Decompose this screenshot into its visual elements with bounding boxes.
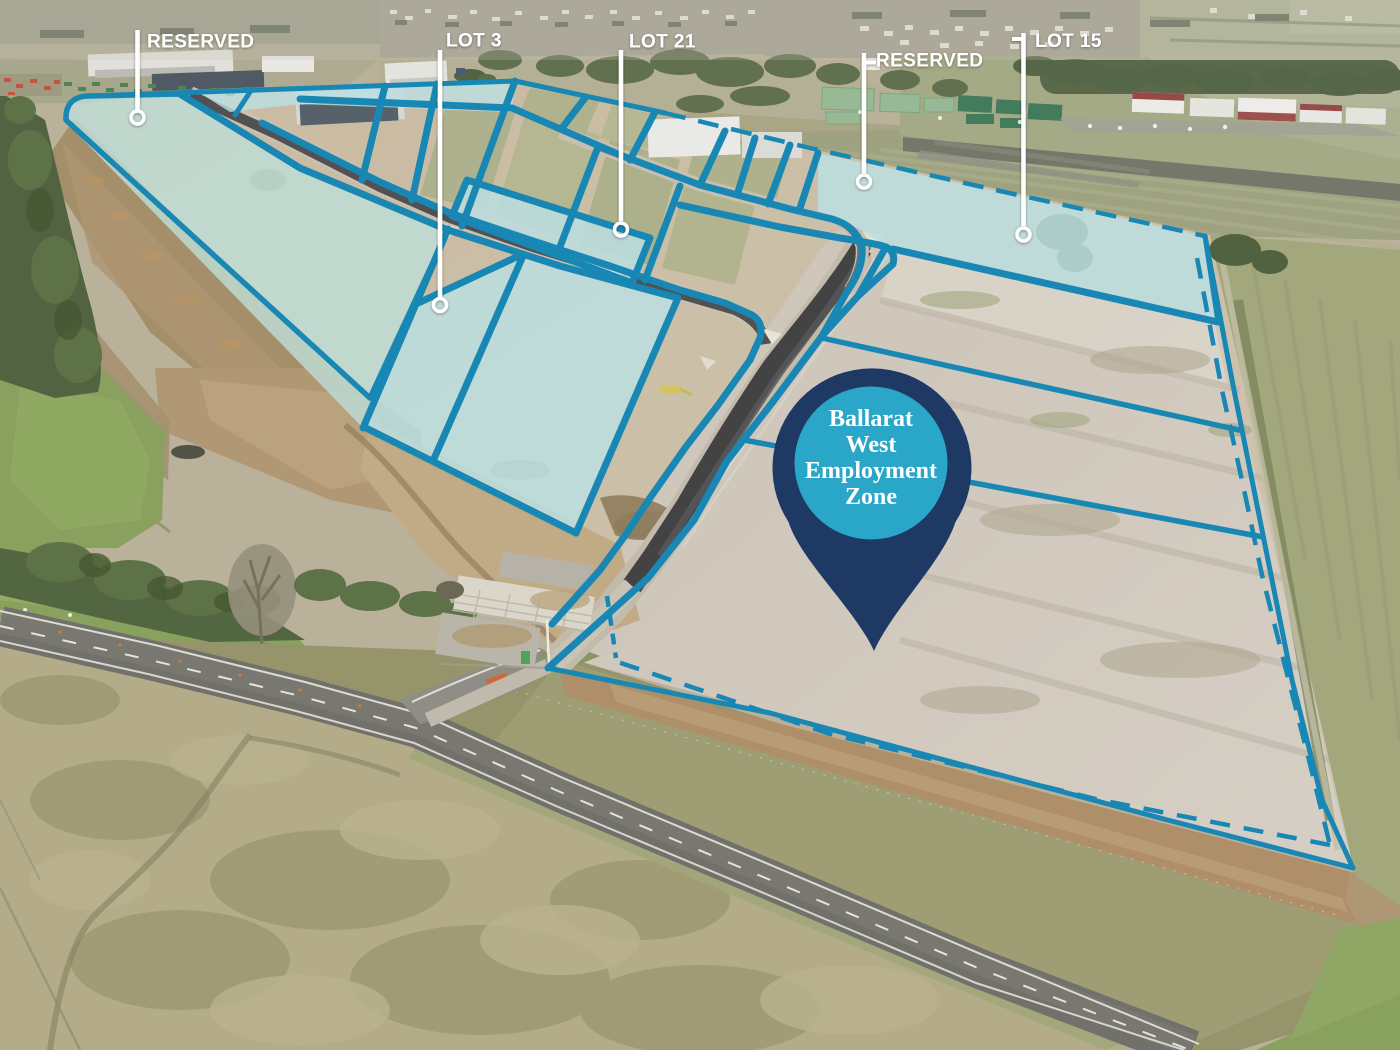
svg-text:LOT 21: LOT 21 xyxy=(629,32,696,53)
svg-text:West: West xyxy=(846,432,897,458)
svg-text:RESERVED: RESERVED xyxy=(147,32,254,53)
svg-text:Zone: Zone xyxy=(845,484,897,510)
svg-text:LOT 3: LOT 3 xyxy=(446,31,502,52)
svg-text:Employment: Employment xyxy=(805,458,937,484)
svg-text:RESERVED: RESERVED xyxy=(876,51,983,72)
svg-text:LOT 15: LOT 15 xyxy=(1035,31,1102,52)
svg-text:Ballarat: Ballarat xyxy=(829,406,913,432)
